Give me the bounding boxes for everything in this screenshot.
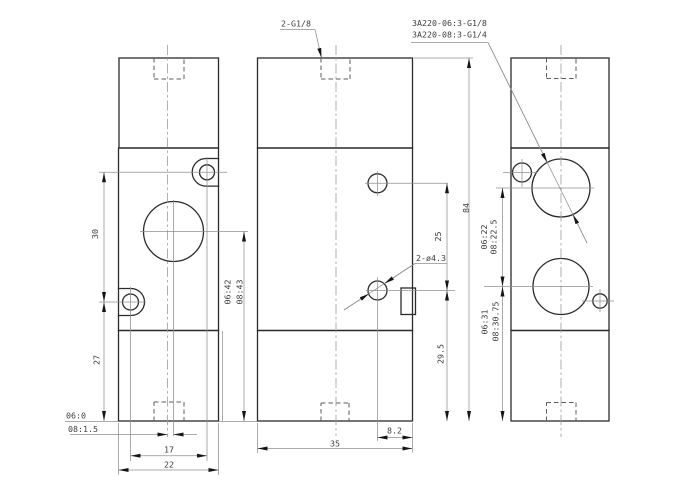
dim-84-label: 84 [461,203,471,213]
port-pitch-06-label: 06:22 [479,225,489,250]
front-base-block [119,331,219,422]
dim-27-label: 27 [92,355,102,365]
dim-22-label: 22 [164,460,174,470]
leader-arrow [315,30,322,59]
dim-29-5-label: 29.5 [436,344,446,364]
port-pitch-08-label: 08:22.5 [489,220,499,255]
dim-30-label: 30 [90,229,100,239]
model-2-label: 3A220-08:3-G1/4 [412,30,487,40]
front-bottom-port-hidden [154,402,184,421]
leader-arrow [488,43,547,163]
dim-17-label: 17 [164,445,174,455]
dim-25-label: 25 [433,232,443,242]
offset-08-label: 08:1.5 [68,424,98,434]
side-bottom-port-hidden [321,403,349,421]
side-view: 2-G1/8 2-ø4.3 25 29.5 84 8.2 35 [258,19,474,454]
front-valve-body [119,148,219,331]
top-port-label: 2-G1/8 [281,19,311,29]
center-height-08-label: 08:43 [235,280,245,305]
drawing-canvas: 30 27 06:0 08:1.5 17 22 06:42 08:43 [0,0,693,493]
leader-arrow [573,215,587,244]
offset-06-label: 06:0 [66,411,86,421]
side-top-port-hidden [321,58,350,79]
side-port-boss [401,288,416,315]
port-bottom-08-label: 08:30.75 [491,302,501,342]
side-solenoid-block [258,58,413,148]
dim-8-2-label: 8.2 [387,426,402,436]
rear-base-block [511,331,609,422]
port-bottom-06-label: 06:31 [480,310,490,335]
side-valve-body [258,148,413,331]
front-top-port-hidden [154,58,184,79]
dim-35-label: 35 [330,439,340,449]
center-height-06-label: 06:42 [223,280,233,305]
rear-view: 3A220-06:3-G1/8 3A220-08:3-G1/4 06:22 08… [411,18,614,437]
model-1-label: 3A220-06:3-G1/8 [412,18,487,28]
rear-valve-body [511,148,609,331]
side-base-block [258,331,413,422]
leader-arrow [344,294,369,310]
rear-solenoid-block [511,58,609,148]
valve-engineering-drawing: 30 27 06:0 08:1.5 17 22 06:42 08:43 [0,0,693,493]
front-view: 30 27 06:0 08:1.5 17 22 06:42 08:43 [65,45,257,475]
leader-arrow [385,264,416,284]
pilot-holes-label: 2-ø4.3 [416,253,446,263]
front-solenoid-block [119,58,219,148]
